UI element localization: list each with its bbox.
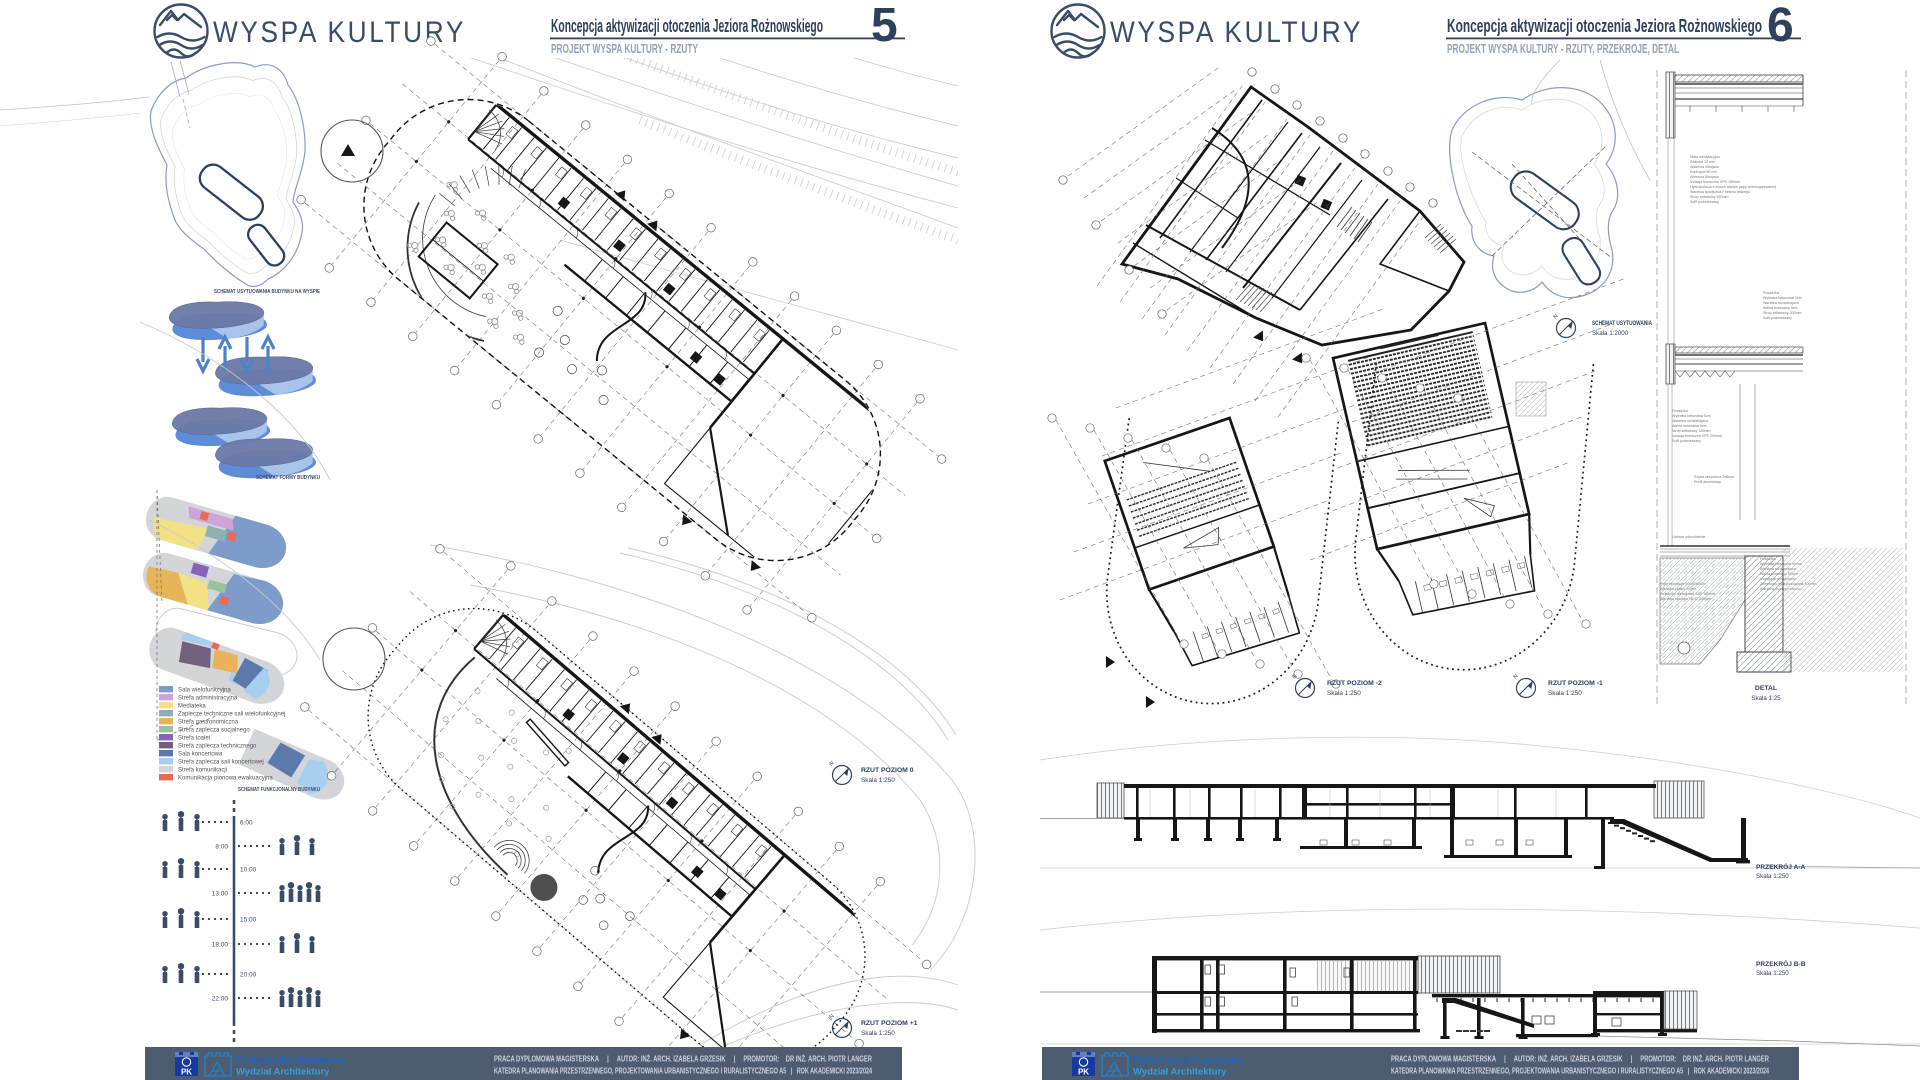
svg-text:Warstwa spadkowa z betonu lekk: Warstwa spadkowa z betonu lekkiego: [1690, 190, 1750, 194]
svg-text:6:00: 6:00: [240, 820, 253, 827]
svg-text:Skala 1:250: Skala 1:250: [861, 777, 895, 784]
svg-text:N: N: [829, 1013, 836, 1020]
svg-text:Skala 1:2000: Skala 1:2000: [1592, 330, 1629, 337]
svg-text:6: 6: [1767, 0, 1794, 52]
svg-text:Sufit podwieszany: Sufit podwieszany: [1763, 316, 1792, 320]
svg-text:PRZEKRÓJ A-A: PRZEKRÓJ A-A: [1756, 862, 1805, 871]
svg-text:PRACA DYPLOMOWA MAGISTERSKA: PRACA DYPLOMOWA MAGISTERSKA | AUTOR: INŻ…: [1391, 1054, 1770, 1064]
svg-text:WYSPA KULTURY: WYSPA KULTURY: [1110, 16, 1363, 49]
svg-text:N: N: [1553, 313, 1560, 320]
svg-text:PK: PK: [181, 1068, 192, 1077]
svg-text:SCHEMAT FUNKCJONALNY BUDYNKU: SCHEMAT FUNKCJONALNY BUDYNKU: [238, 787, 320, 793]
svg-text:Strefa zaplecza socjalnego: Strefa zaplecza socjalnego: [178, 728, 250, 734]
svg-text:KATEDRA PLANOWANIA PRZESTRZENN: KATEDRA PLANOWANIA PRZESTRZENNEGO, PROJE…: [1391, 1066, 1769, 1076]
svg-text:SCHEMAT USYTUOWANIA BUDYNKU NA: SCHEMAT USYTUOWANIA BUDYNKU NA WYSPIE: [214, 289, 320, 295]
svg-text:Politechnika Krakowska: Politechnika Krakowska: [1133, 1055, 1242, 1066]
svg-text:Szyba zespolona 2x8mm: Szyba zespolona 2x8mm: [1694, 475, 1734, 479]
svg-text:Skala 1:250: Skala 1:250: [1756, 873, 1789, 880]
svg-text:RZUT POZIOM +1: RZUT POZIOM +1: [861, 1020, 918, 1027]
svg-text:Warstwa rozdzielajaca: Warstwa rozdzielajaca: [1763, 301, 1799, 305]
svg-text:Sala wielofunkcyjna: Sala wielofunkcyjna: [178, 688, 231, 694]
svg-text:Skala 1:250: Skala 1:250: [1548, 690, 1582, 697]
svg-text:Profil aluminiowy: Profil aluminiowy: [1694, 480, 1721, 484]
svg-text:5: 5: [871, 0, 898, 52]
svg-text:Strefa komunikacji: Strefa komunikacji: [178, 768, 227, 774]
svg-text:PROJEKT WYSPA KULTURY - RZUTY: PROJEKT WYSPA KULTURY - RZUTY: [551, 42, 698, 56]
svg-text:Strefa zaplecza technicznego: Strefa zaplecza technicznego: [178, 744, 257, 750]
svg-text:PRACA DYPLOMOWA MAGISTERSKA: PRACA DYPLOMOWA MAGISTERSKA | AUTOR: INŻ…: [494, 1054, 873, 1064]
svg-text:Wydział Architektury: Wydział Architektury: [236, 1067, 330, 1078]
svg-text:Wstenna filtrujaca: Wstenna filtrujaca: [1690, 175, 1719, 179]
svg-text:Sufit podwieszany: Sufit podwieszany: [1672, 439, 1701, 443]
svg-text:RZUT POZIOM -1: RZUT POZIOM -1: [1548, 680, 1603, 687]
svg-text:Liniowe odwodnienie: Liniowe odwodnienie: [1672, 535, 1705, 539]
svg-text:20:00: 20:00: [240, 972, 257, 979]
svg-text:13:00: 13:00: [212, 891, 229, 898]
svg-text:Wstenna filtrujaca: Wstenna filtrujaca: [1690, 165, 1719, 169]
svg-text:Posadzka: Posadzka: [1763, 291, 1779, 295]
svg-text:Sala koncertowa: Sala koncertowa: [178, 752, 223, 758]
svg-text:RZUT POZIOM -2: RZUT POZIOM -2: [1327, 680, 1382, 687]
svg-text:Posadzka: Posadzka: [1672, 409, 1688, 413]
svg-text:10:00: 10:00: [240, 867, 257, 874]
svg-text:Walna mineralna 5cm: Walna mineralna 5cm: [1763, 306, 1798, 310]
svg-text:Sufit podwieszany: Sufit podwieszany: [1690, 200, 1719, 204]
svg-text:Strefa administracyjna: Strefa administracyjna: [178, 696, 238, 702]
svg-text:Wylewka betonowa 5cm: Wylewka betonowa 5cm: [1763, 296, 1802, 300]
svg-text:DETAL: DETAL: [1755, 685, 1777, 692]
svg-text:Strefa zaplecza sali koncertow: Strefa zaplecza sali koncertowej: [178, 760, 264, 766]
svg-text:Wydział Architektury: Wydział Architektury: [1133, 1067, 1227, 1078]
svg-text:Strefa gastronomiczna: Strefa gastronomiczna: [178, 720, 239, 726]
svg-text:Koncepcja aktywizacji otoczeni: Koncepcja aktywizacji otoczenia Jeziora …: [551, 16, 823, 36]
svg-text:Mata wentylacyjna: Mata wentylacyjna: [1690, 155, 1720, 159]
svg-text:SCHEMAT FORMY BUDYNKU: SCHEMAT FORMY BUDYNKU: [256, 475, 320, 481]
svg-text:Wylewka betonowa 5cm: Wylewka betonowa 5cm: [1672, 414, 1711, 418]
svg-text:Hydroizolacja z dwoch warstw p: Hydroizolacja z dwoch warstw papy termoz…: [1690, 185, 1776, 189]
svg-text:Walna mineralna 5cm: Walna mineralna 5cm: [1672, 424, 1707, 428]
svg-text:15:00: 15:00: [240, 917, 257, 924]
svg-text:Strop zelbetowy 300mm: Strop zelbetowy 300mm: [1763, 311, 1802, 315]
svg-text:N: N: [829, 760, 836, 767]
svg-text:PROJEKT WYSPA KULTURY - RZUTY,: PROJEKT WYSPA KULTURY - RZUTY, PRZEKROJE…: [1447, 42, 1679, 56]
svg-text:Koncepcja aktywizacji otoczeni: Koncepcja aktywizacji otoczenia Jeziora …: [1447, 16, 1762, 36]
svg-text:Kontrapol 80 mm: Kontrapol 80 mm: [1690, 170, 1717, 174]
svg-text:18:00: 18:00: [212, 942, 229, 949]
svg-text:Strop zelbetowy 550mm: Strop zelbetowy 550mm: [1690, 195, 1729, 199]
svg-text:Izolacja termiczna XPS 150mm: Izolacja termiczna XPS 150mm: [1690, 180, 1740, 184]
svg-text:KATEDRA PLANOWANIA PRZESTRZENN: KATEDRA PLANOWANIA PRZESTRZENNEGO, PROJE…: [494, 1066, 872, 1076]
svg-text:PK: PK: [1078, 1068, 1089, 1077]
svg-text:Zaplecze techniczne sali wielo: Zaplecze techniczne sali wielofunkcyjnej: [178, 712, 285, 718]
svg-text:RZUT POZIOM 0: RZUT POZIOM 0: [861, 767, 914, 774]
svg-text:SCHEMAT USYTUOWANIA: SCHEMAT USYTUOWANIA: [1592, 320, 1652, 327]
svg-text:Skala 1:250: Skala 1:250: [861, 1030, 895, 1037]
svg-text:Skala 1:250: Skala 1:250: [1327, 690, 1361, 697]
svg-text:Warstwa rozdzielajaca: Warstwa rozdzielajaca: [1672, 419, 1708, 423]
svg-text:22:00: 22:00: [212, 996, 229, 1003]
svg-text:Politechnika Krakowska: Politechnika Krakowska: [236, 1055, 345, 1066]
svg-text:Mediateka: Mediateka: [178, 704, 206, 710]
svg-text:Szalefat 32 mm: Szalefat 32 mm: [1690, 160, 1715, 164]
svg-text:8:00: 8:00: [215, 844, 228, 851]
svg-text:Skala 1:25: Skala 1:25: [1751, 695, 1781, 702]
svg-text:N: N: [1513, 673, 1520, 680]
svg-text:Izolacja termiczna XPS 200mm: Izolacja termiczna XPS 200mm: [1672, 434, 1722, 438]
svg-text:Strefa toalet: Strefa toalet: [178, 736, 211, 742]
svg-text:Strop zelbetowy 300mm: Strop zelbetowy 300mm: [1672, 429, 1711, 433]
svg-text:Skala 1:250: Skala 1:250: [1756, 970, 1789, 977]
svg-text:Komunikacja pionowa ewakuacyjn: Komunikacja pionowa ewakuacyjna: [178, 776, 273, 782]
svg-text:PRZEKRÓJ B-B: PRZEKRÓJ B-B: [1756, 959, 1806, 968]
